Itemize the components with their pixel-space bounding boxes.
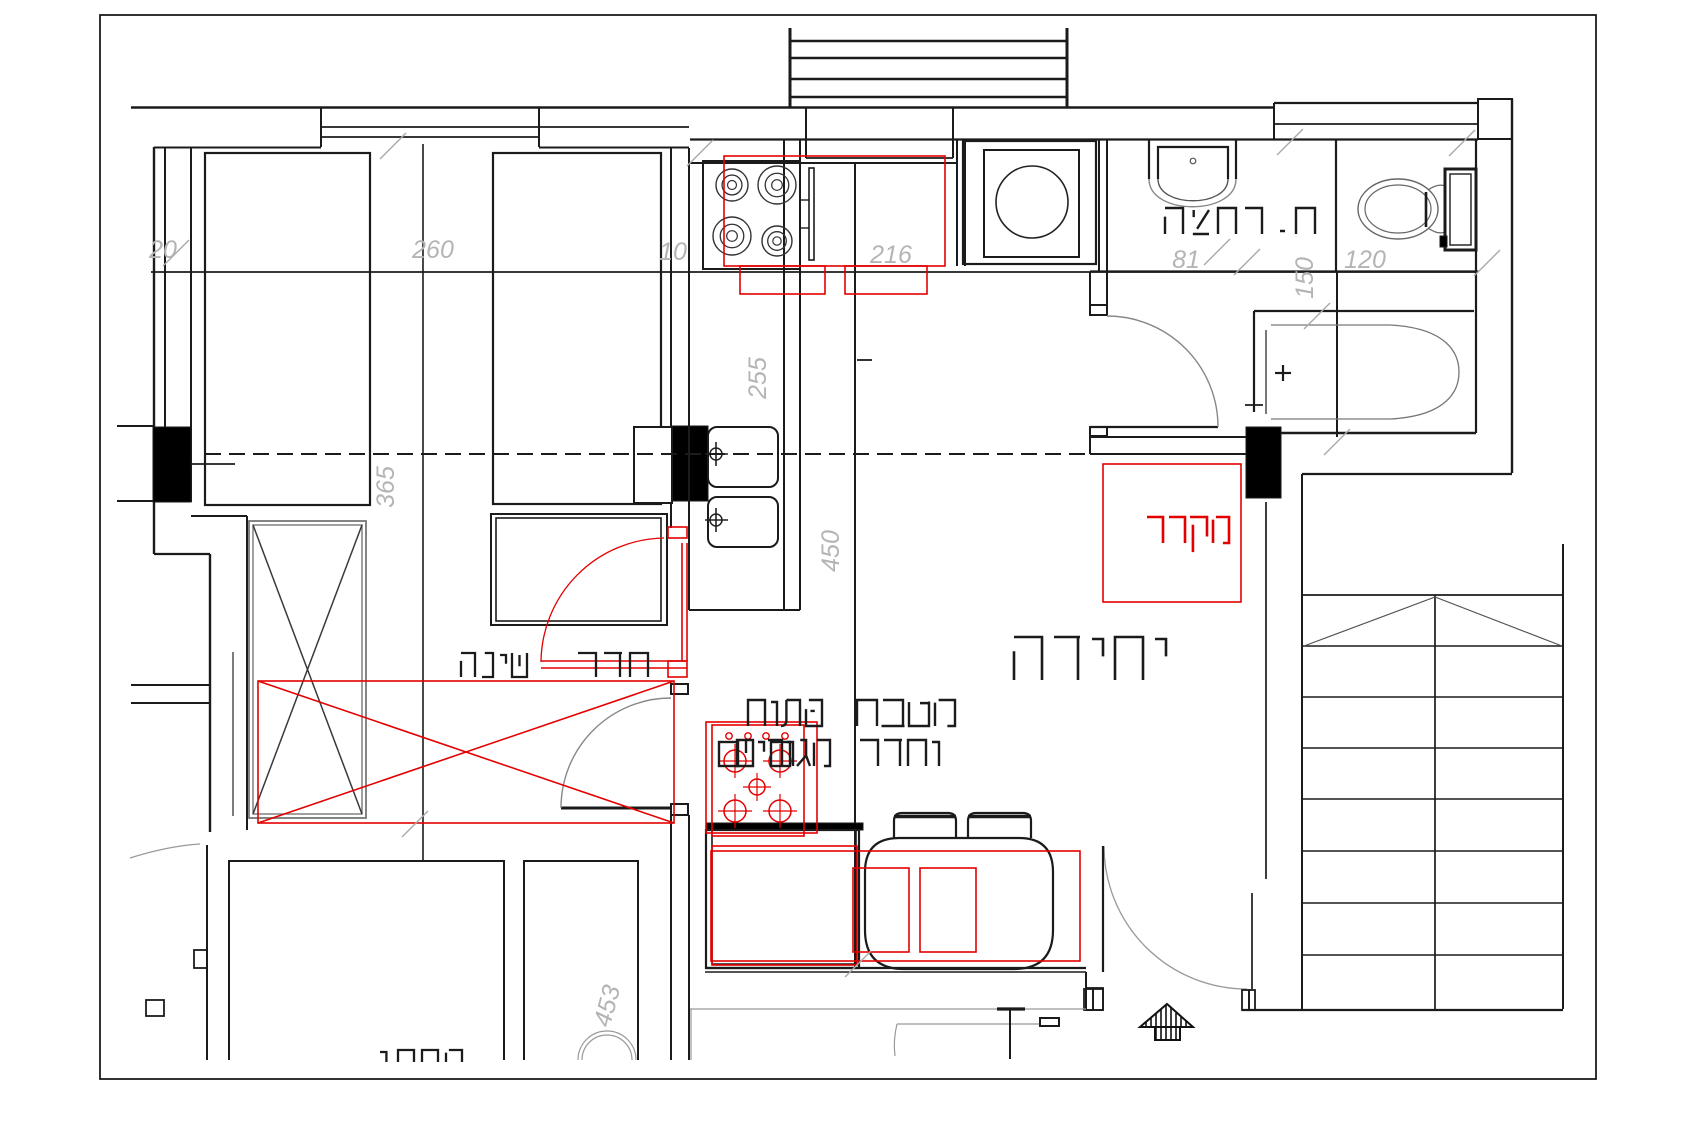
- svg-text:150: 150: [1291, 257, 1319, 299]
- svg-text:120: 120: [1344, 246, 1386, 274]
- svg-text:10: 10: [659, 238, 687, 266]
- svg-text:260: 260: [411, 236, 454, 264]
- svg-text:450: 450: [817, 530, 845, 572]
- svg-text:365: 365: [372, 466, 400, 508]
- svg-text:255: 255: [744, 357, 772, 400]
- svg-text:20: 20: [148, 236, 177, 264]
- svg-text:81: 81: [1172, 246, 1200, 274]
- svg-text:216: 216: [869, 241, 912, 269]
